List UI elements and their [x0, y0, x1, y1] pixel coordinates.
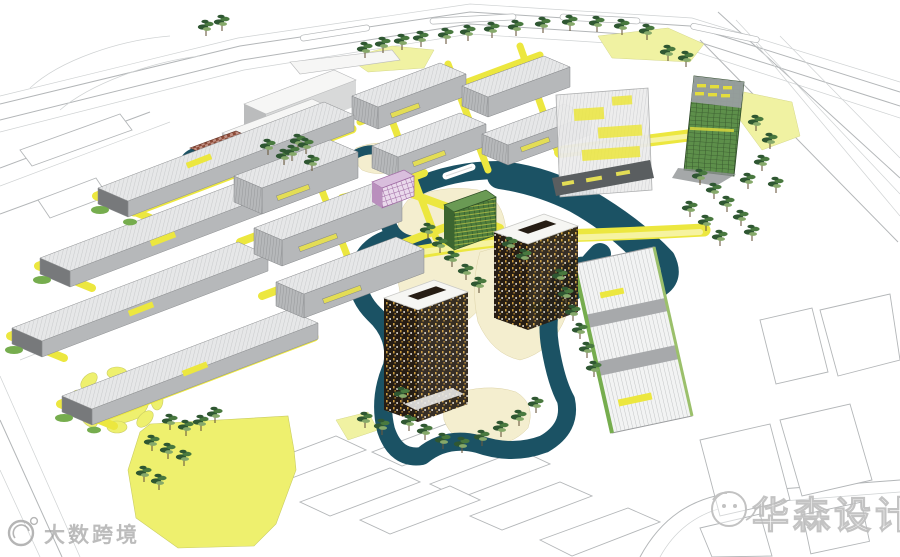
masterplan-rendering: 大数跨境 华森设计 — [0, 0, 900, 557]
exhibition-slab — [552, 88, 654, 197]
watermark-text-right: 华森设计 — [752, 495, 900, 536]
top-cluster — [352, 56, 590, 179]
dark-courtyard-tower-lower — [384, 280, 468, 422]
watermark-text-left: 大数跨境 — [44, 523, 140, 547]
rendering-canvas: 大数跨境 华森设计 — [0, 0, 900, 557]
swirl-circle-logo-icon — [9, 518, 37, 545]
